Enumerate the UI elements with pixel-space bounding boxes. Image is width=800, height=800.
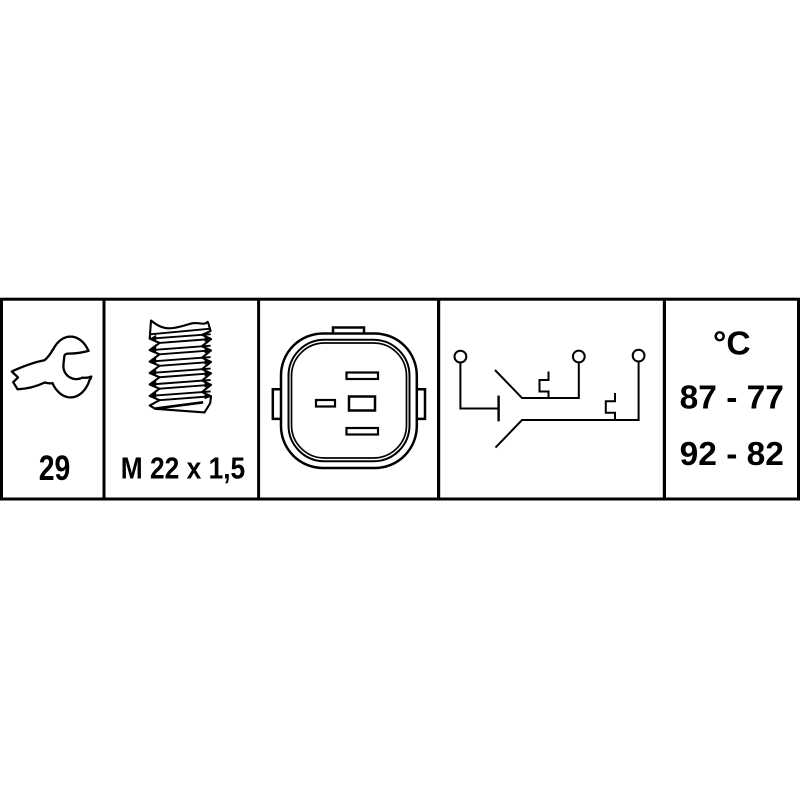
svg-text:M 22 x 1,5: M 22 x 1,5 — [121, 452, 245, 486]
svg-text:92 - 82: 92 - 82 — [680, 436, 784, 473]
svg-text:87 - 77: 87 - 77 — [680, 380, 784, 417]
svg-text:29: 29 — [39, 448, 71, 488]
svg-text:°C: °C — [713, 326, 751, 363]
